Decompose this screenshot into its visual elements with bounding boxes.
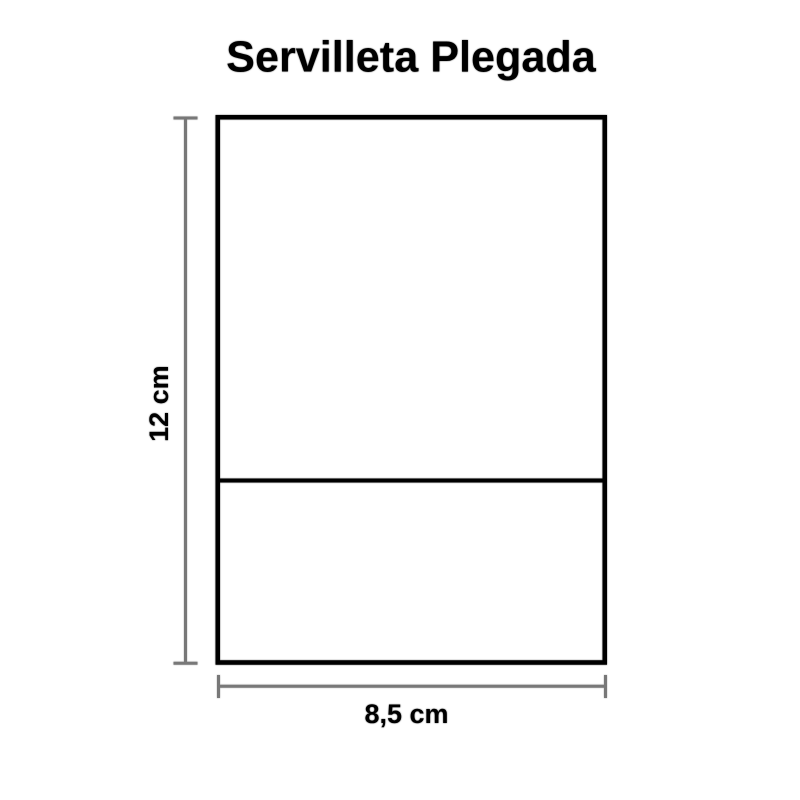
svg-text:Servilleta Plegada: Servilleta Plegada — [226, 34, 597, 82]
svg-text:8,5 cm: 8,5 cm — [364, 699, 448, 729]
svg-text:12 cm: 12 cm — [144, 365, 174, 442]
